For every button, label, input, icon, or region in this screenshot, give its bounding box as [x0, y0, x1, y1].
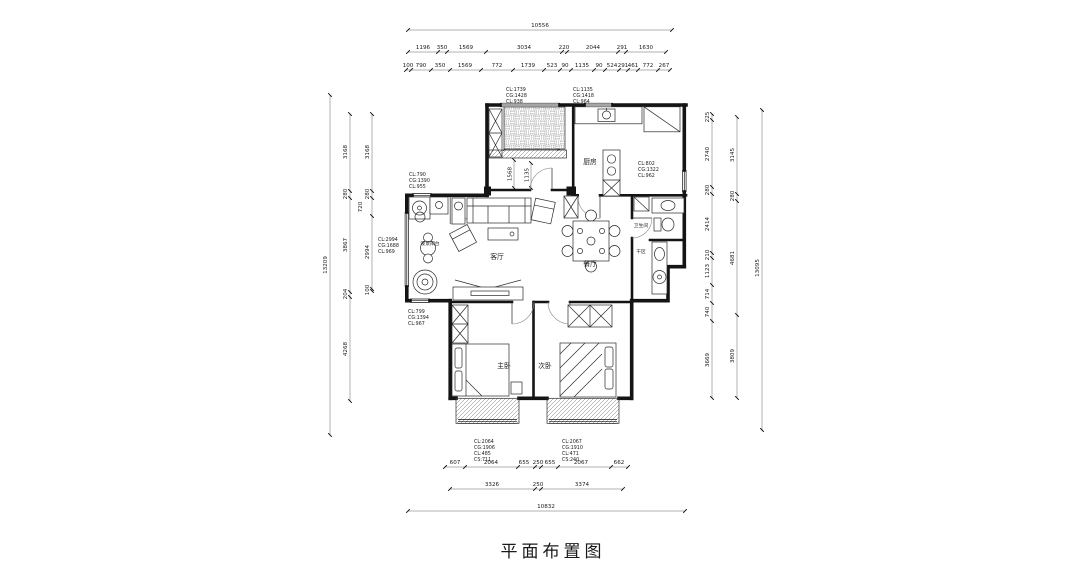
bay-window-master: [456, 398, 519, 423]
master-wardrobe: [452, 305, 468, 343]
parquet-floor: [504, 107, 565, 149]
wall-pier: [567, 187, 577, 196]
dim-label: 655: [519, 460, 530, 466]
dim-label: 3326: [485, 482, 500, 488]
shower-fixture: [634, 197, 649, 211]
dining-cabinet: [564, 196, 578, 218]
dim-label: 790: [416, 63, 427, 69]
dim-label: 714: [705, 288, 711, 299]
dim-label: 210: [705, 249, 711, 260]
dim-label: 225: [705, 111, 711, 122]
window-spec: CG:1394: [408, 315, 429, 321]
sofa: [467, 198, 531, 223]
dim-label: 13209: [323, 256, 329, 274]
washing-machine: [409, 197, 430, 219]
dim-label: 2414: [705, 216, 711, 231]
dim-label: 100: [365, 284, 371, 295]
dim-label: 204: [343, 288, 349, 299]
dim-label: 280: [730, 190, 736, 201]
toilet: [654, 218, 674, 231]
dim-label: 740: [705, 306, 711, 317]
armchair: [531, 198, 555, 224]
window-spec: CL:799: [408, 309, 425, 315]
window-living-left: [405, 212, 408, 287]
dim-label: 461: [628, 63, 639, 69]
dim-label: 100: [403, 63, 414, 69]
dim-label: 1135: [575, 63, 590, 69]
dim-label: 267: [659, 63, 670, 69]
dim-label: 250: [533, 460, 544, 466]
second-bedroom: [560, 305, 616, 397]
window-spec: CG:1418: [573, 93, 594, 99]
dim-label: 607: [450, 460, 461, 466]
dim-label: 280: [705, 184, 711, 195]
dim-label: 655: [545, 460, 556, 466]
top-dimensions: 10556 1196 350 1569 3034 220 2044 291 16…: [403, 23, 674, 72]
dim-label: 10832: [537, 504, 555, 510]
bottom-dimensions: 607 2064 655 250 655 2067 662 3326 250 3…: [406, 460, 687, 513]
dim-label: 772: [492, 63, 503, 69]
kitchen-area: [575, 107, 680, 196]
room-label-bay: 观景阳台: [420, 240, 439, 247]
dim-label: 10556: [531, 23, 549, 29]
window-spec: CL:1135: [573, 87, 593, 93]
dim-label: 350: [435, 63, 446, 69]
room-label-master: 主卧: [497, 361, 511, 370]
dim-label: 280: [365, 188, 371, 199]
drawing-title: 平面布置图: [501, 542, 606, 562]
window-spec: CL:964: [573, 99, 590, 105]
master-door-arc: [512, 302, 534, 324]
dim-label: 3034: [517, 45, 532, 51]
bay-window-second: [547, 398, 619, 423]
window-spec: CL:471: [562, 451, 579, 457]
balcony-area: [489, 107, 567, 158]
dim-label: 220: [559, 45, 570, 51]
dry-counter: [652, 242, 667, 294]
master-bed: [452, 344, 509, 396]
sliding-door-sill: [489, 150, 567, 158]
dim-label: 90: [561, 63, 569, 69]
dim-label: 3374: [575, 482, 590, 488]
left-dimensions: 13209 3168 280 3867 204 4268 3168 280 72…: [323, 93, 374, 437]
wall-pier: [484, 187, 491, 196]
stove-unit: [603, 150, 620, 196]
living-room: [449, 198, 555, 300]
window-spec: CL:790: [409, 172, 426, 178]
window-spec: CS:240: [562, 457, 579, 463]
master-bedroom: [452, 305, 522, 396]
dim-label: 523: [547, 63, 558, 69]
dim-label: 2994: [365, 244, 371, 259]
window-bay-left: [410, 299, 430, 302]
round-rug: [413, 270, 437, 294]
tv-icon: [471, 291, 509, 296]
window-spec: CG:1910: [562, 445, 583, 451]
window-spec: CG:1688: [378, 243, 399, 249]
window-spec: CL:2994: [378, 237, 398, 243]
second-wardrobe: [568, 305, 612, 327]
dim-label: 3809: [730, 348, 736, 363]
window-spec: CL:802: [638, 161, 655, 167]
window-spec: CL:2067: [562, 439, 582, 445]
window-spec: CL:938: [506, 99, 523, 105]
dim-label: 662: [614, 460, 625, 466]
entry-cabinet: [430, 197, 448, 214]
tv-cabinet: [453, 280, 523, 300]
dim-label: 4681: [730, 250, 736, 265]
dim-label: 524: [607, 63, 618, 69]
window-spec: CL:2064: [474, 439, 494, 445]
dim-label: 2740: [705, 146, 711, 161]
dry-area: [652, 242, 667, 294]
bay-table-set: [421, 233, 436, 263]
second-door-arc: [548, 302, 570, 324]
window-spec: CL:955: [409, 184, 426, 190]
dim-label: 3168: [343, 144, 349, 159]
window-spec: CG:1322: [638, 167, 659, 173]
window-entry-top: [412, 194, 432, 197]
dim-label: 291: [617, 45, 628, 51]
window-spec: CL:962: [638, 173, 655, 179]
room-label-dining: 餐厅: [583, 259, 597, 268]
room-label-second: 次卧: [538, 361, 552, 370]
dim-label: 3168: [365, 144, 371, 159]
dim-label: 3867: [343, 237, 349, 252]
nightstand: [511, 382, 522, 394]
floor-plan-canvas: 10556 1196 350 1569 3034 220 2044 291 16…: [0, 0, 1074, 576]
second-bed: [560, 343, 616, 397]
dim-label: 1739: [521, 63, 536, 69]
view-bay: [413, 212, 437, 294]
dim-label: 13095: [755, 259, 761, 277]
dim-label: 250: [533, 482, 544, 488]
dim-label: 3669: [705, 352, 711, 367]
vanity-sink: [652, 198, 684, 213]
fridge: [644, 107, 680, 132]
balcony-door-arc: [530, 168, 552, 190]
window-spec: CG:1906: [474, 445, 495, 451]
dim-label: 1569: [458, 63, 473, 69]
dim-label: 720: [358, 201, 364, 212]
room-label-kitchen: 厨房: [583, 157, 597, 166]
dim-label: 1568: [508, 166, 514, 181]
door-symbols: [450, 168, 652, 324]
window-kitchen-right: [683, 170, 687, 192]
window-spec: CS:711: [474, 457, 491, 463]
dim-label: 1123: [705, 263, 711, 278]
dim-label: 280: [343, 188, 349, 199]
dim-label: 3145: [730, 147, 736, 162]
coffee-table: [488, 228, 518, 240]
window-spec: CL:485: [474, 451, 491, 457]
dim-label: 90: [595, 63, 603, 69]
room-label-dry: 干区: [636, 249, 646, 255]
accent-chair: [449, 224, 476, 251]
dim-label: 2044: [586, 45, 601, 51]
window-spec: CL:1739: [506, 87, 526, 93]
dim-label: 1630: [639, 45, 654, 51]
dim-label: 1196: [416, 45, 431, 51]
window-spec: CG:1428: [506, 93, 527, 99]
dim-label: 772: [643, 63, 654, 69]
room-label-living: 客厅: [490, 252, 504, 261]
dim-label: 1569: [459, 45, 474, 51]
window-spec: CG:1390: [409, 178, 430, 184]
dim-label: 350: [437, 45, 448, 51]
dim-label: 4268: [343, 341, 349, 356]
right-dimensions: 225 2740 280 2414 210 1123 714 740 3669 …: [705, 108, 764, 432]
room-label-bath: 卫生间: [634, 222, 649, 229]
dim-label: 1135: [525, 167, 531, 182]
window-spec: CL:967: [408, 321, 425, 327]
window-spec: CL:969: [378, 249, 395, 255]
